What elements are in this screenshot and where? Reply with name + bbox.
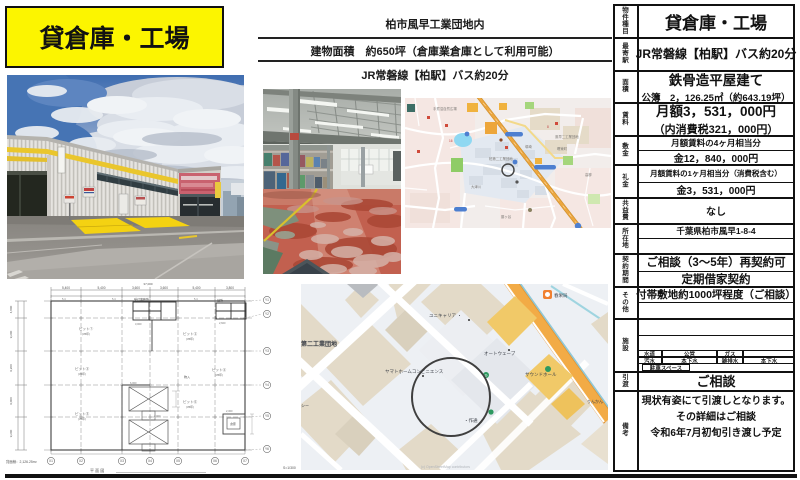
svg-text:Y5: Y5: [265, 414, 269, 418]
svg-text:5,400: 5,400: [193, 286, 201, 290]
svg-text:貸面積：2,126.25m²: 貸面積：2,126.25m²: [6, 459, 38, 464]
svg-text:(35坪): (35坪): [186, 405, 194, 409]
svg-text:柏第二工業団地: 柏第二工業団地: [489, 156, 513, 161]
svg-text:16: 16: [449, 139, 453, 143]
svg-text:手賀沼自然広場: 手賀沼自然広場: [433, 106, 457, 111]
svg-text:9,200: 9,200: [9, 429, 13, 437]
svg-text:2,600: 2,600: [219, 321, 226, 325]
svg-text:(35坪): (35坪): [78, 372, 86, 376]
svg-text:高柳: 高柳: [585, 172, 592, 177]
svg-text:詰所: 詰所: [217, 298, 223, 303]
svg-text:9,000: 9,000: [9, 397, 13, 405]
svg-text:6,000: 6,000: [130, 381, 137, 385]
svg-text:3,000: 3,000: [135, 322, 142, 326]
svg-text:Y1: Y1: [265, 298, 269, 302]
svg-text:X2: X2: [79, 459, 83, 463]
svg-text:5.4: 5.4: [62, 297, 66, 301]
svg-text:倉庫: 倉庫: [230, 422, 236, 426]
svg-text:3,800: 3,800: [226, 286, 234, 290]
svg-text:風早二工業団地: 風早二工業団地: [555, 134, 579, 139]
svg-text:3,600: 3,600: [160, 286, 168, 290]
svg-text:ピット⑤: ピット⑤: [75, 411, 90, 416]
svg-text:5.4: 5.4: [112, 297, 116, 301]
svg-text:Y4: Y4: [265, 383, 269, 387]
svg-text:ヤマトホームコンビニエンス: ヤマトホームコンビニエンス: [385, 368, 444, 375]
svg-text:5,400: 5,400: [62, 286, 70, 290]
svg-text:5,400: 5,400: [98, 286, 106, 290]
svg-text:(35坪): (35坪): [78, 417, 86, 421]
svg-text:4,800: 4,800: [9, 305, 13, 313]
svg-text:Y2: Y2: [265, 312, 269, 316]
svg-text:オートウェーブ: オートウェーブ: [484, 350, 516, 357]
svg-text:Y3: Y3: [265, 349, 269, 353]
svg-text:X4: X4: [148, 459, 152, 463]
svg-text:受付事務所: 受付事務所: [134, 297, 149, 302]
svg-text:X1: X1: [49, 459, 53, 463]
svg-text:5.4: 5.4: [194, 297, 198, 301]
svg-text:第二工業団地: 第二工業団地: [301, 340, 337, 348]
svg-text:2,000: 2,000: [154, 414, 161, 418]
svg-text:ピット③: ピット③: [75, 366, 90, 371]
svg-text:(c) OpenStreetMap contributors: (c) OpenStreetMap contributors: [421, 465, 470, 469]
svg-text:りんかん: りんかん: [587, 398, 603, 404]
svg-text:3,600: 3,600: [132, 286, 140, 290]
svg-text:サウンドホール: サウンドホール: [525, 371, 557, 378]
svg-text:Y6: Y6: [265, 447, 269, 451]
svg-text:藤ヶ谷: 藤ヶ谷: [501, 214, 512, 219]
svg-text:X7: X7: [243, 459, 247, 463]
svg-text:9,200: 9,200: [9, 330, 13, 338]
svg-text:ピット④: ピット④: [212, 367, 227, 372]
svg-text:大津川: 大津川: [471, 184, 482, 189]
svg-text:(35坪): (35坪): [215, 373, 223, 377]
svg-text:・作通: ・作通: [464, 417, 478, 424]
svg-text:物入: 物入: [184, 374, 190, 379]
svg-text:シー: シー: [301, 403, 309, 408]
svg-text:37,000: 37,000: [143, 283, 153, 286]
svg-text:平 面 図: 平 面 図: [90, 468, 104, 473]
svg-text:曙東町: 曙東町: [557, 146, 568, 151]
svg-text:ピット⑥: ピット⑥: [183, 399, 198, 404]
svg-text:X6: X6: [213, 459, 217, 463]
svg-text:(35坪): (35坪): [186, 337, 194, 341]
svg-text:ピット②: ピット②: [183, 331, 198, 336]
svg-text:(35坪): (35坪): [82, 332, 90, 336]
svg-text:8: 8: [547, 125, 549, 129]
svg-text:塚崎: 塚崎: [525, 144, 532, 149]
svg-text:S=1/300: S=1/300: [283, 466, 296, 470]
svg-text:春栄局: 春栄局: [554, 292, 568, 299]
svg-text:ピット①: ピット①: [79, 326, 94, 331]
svg-text:X5: X5: [176, 459, 180, 463]
svg-text:X3: X3: [120, 459, 124, 463]
svg-text:9,200: 9,200: [9, 364, 13, 372]
svg-text:2,300: 2,300: [226, 409, 233, 413]
